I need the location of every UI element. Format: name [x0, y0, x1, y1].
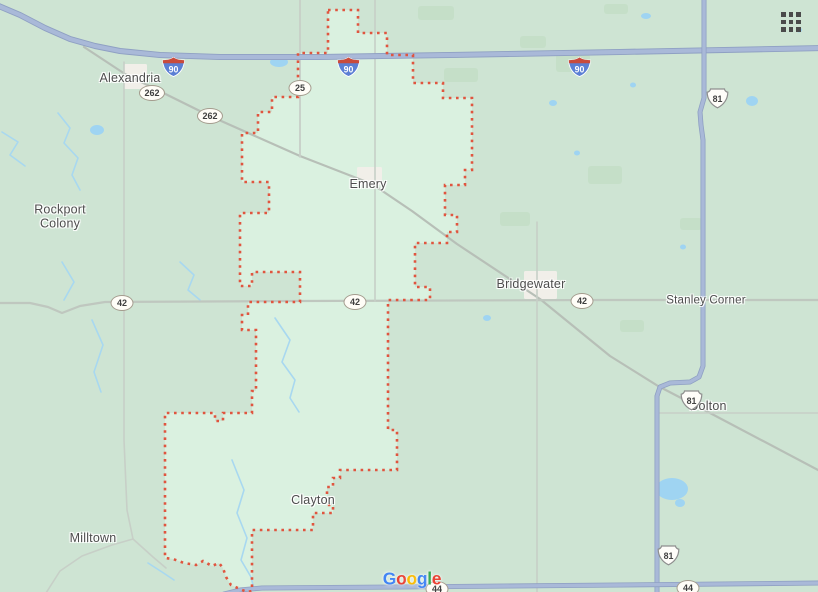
- google-logo-letter: g: [417, 569, 427, 589]
- pond: [641, 13, 651, 19]
- vegetation-patch: [604, 4, 628, 14]
- place-label-rockport-colony[interactable]: RockportColony: [34, 203, 86, 232]
- apps-grid-icon[interactable]: [781, 12, 801, 32]
- pond: [549, 100, 557, 106]
- google-logo-letter: G: [383, 569, 396, 589]
- vegetation-patch: [418, 6, 454, 20]
- place-label-dolton[interactable]: Dolton: [689, 399, 726, 413]
- vegetation-patch: [588, 166, 622, 184]
- pond: [746, 96, 758, 106]
- place-label-clayton[interactable]: Clayton: [291, 493, 335, 507]
- map-canvas[interactable]: AlexandriaRockportColonyEmeryBridgewater…: [0, 0, 818, 592]
- vegetation-patch: [556, 54, 590, 72]
- pond: [90, 125, 104, 135]
- place-label-stanley-corner[interactable]: Stanley Corner: [666, 294, 746, 307]
- pond: [656, 478, 688, 500]
- place-label-milltown[interactable]: Milltown: [70, 531, 117, 545]
- vegetation-patch: [520, 36, 546, 48]
- google-logo-letter: o: [406, 569, 416, 589]
- pond: [680, 245, 686, 250]
- pond: [574, 151, 580, 156]
- pond: [675, 499, 685, 507]
- place-label-alexandria[interactable]: Alexandria: [99, 71, 160, 85]
- place-label-emery[interactable]: Emery: [349, 177, 386, 191]
- vegetation-patch: [680, 218, 702, 230]
- pond: [483, 315, 491, 321]
- vegetation-patch: [444, 68, 478, 82]
- vegetation-patch: [620, 320, 644, 332]
- vegetation-patch: [500, 212, 530, 226]
- google-logo[interactable]: Google: [383, 569, 441, 590]
- google-logo-letter: o: [396, 569, 406, 589]
- google-logo-letter: e: [432, 569, 441, 589]
- place-label-bridgewater[interactable]: Bridgewater: [497, 277, 566, 291]
- pond: [630, 83, 636, 88]
